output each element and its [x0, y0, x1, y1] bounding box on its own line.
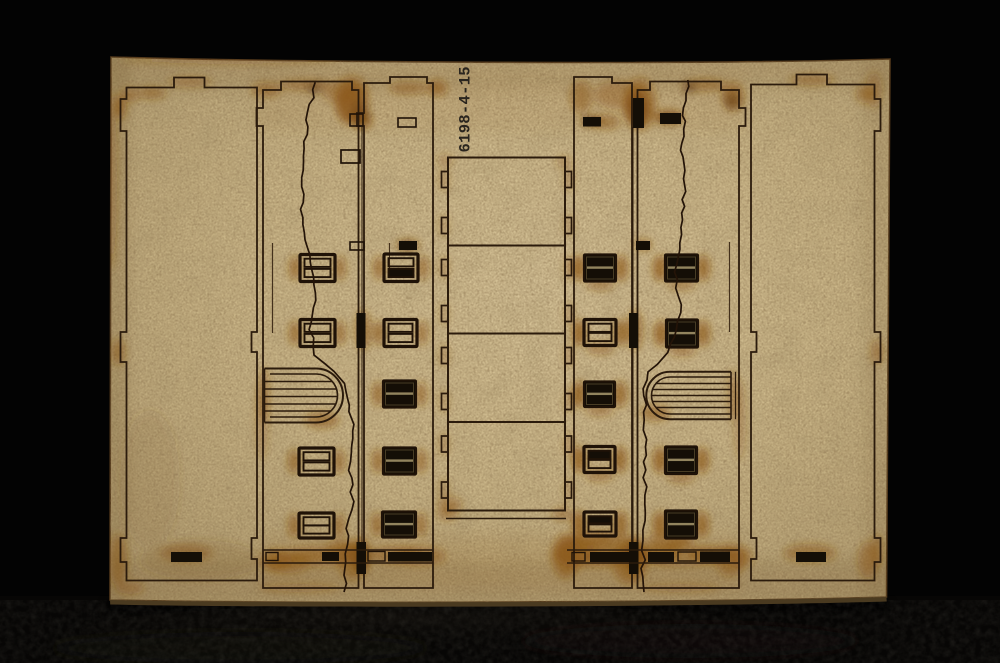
svg-text:6198-4-15: 6198-4-15 — [457, 66, 475, 152]
